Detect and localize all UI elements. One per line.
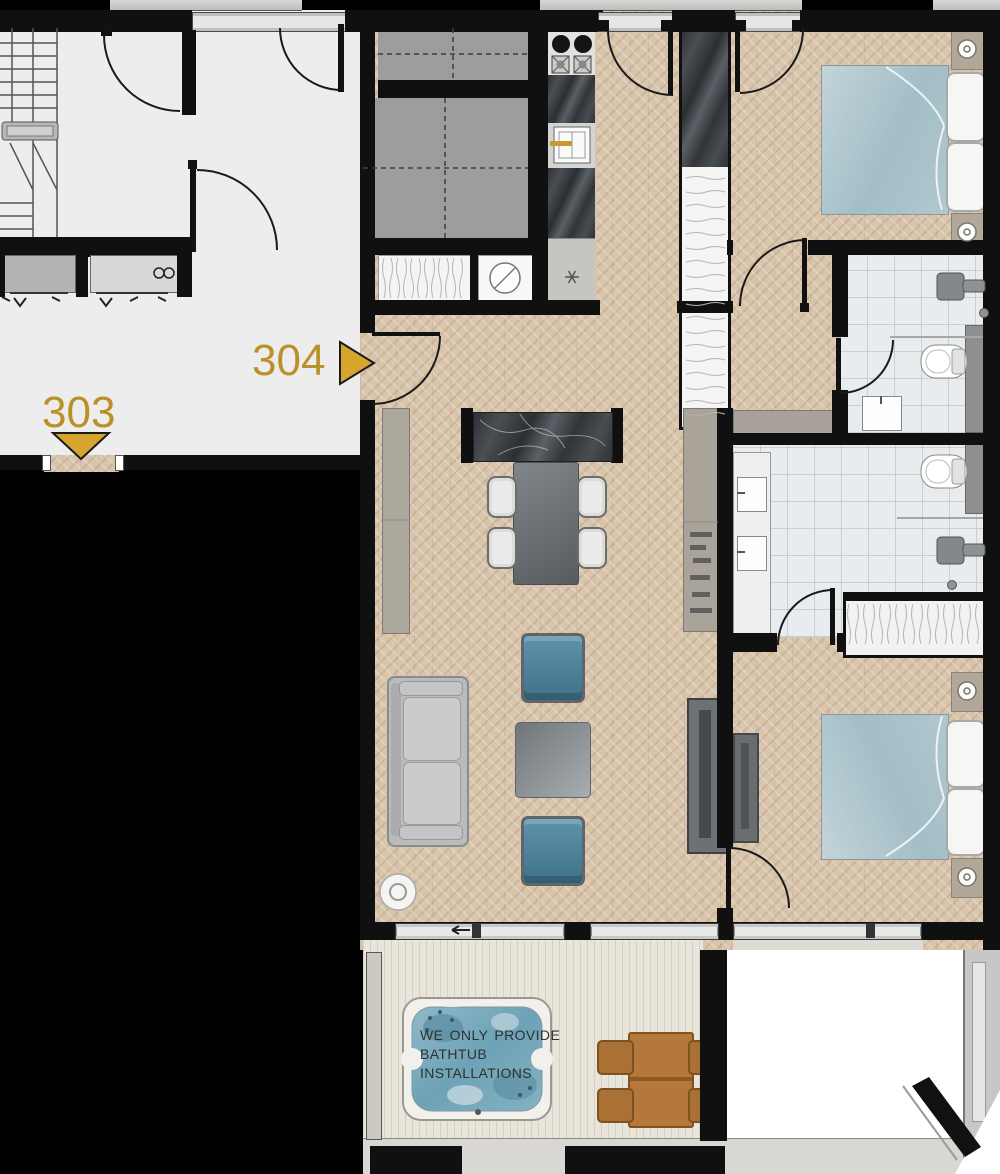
shower-icon <box>937 537 985 590</box>
door-leaves <box>101 24 841 908</box>
floor-plan: 304 303 WE ONLY PROVIDE BATHTUB INSTALLA… <box>0 0 1000 1174</box>
stove-burners-icon <box>552 35 592 73</box>
marble-veins <box>480 414 605 455</box>
bathtub-note-line: BATHTUB <box>420 1045 560 1064</box>
shaft-cross-lines <box>363 28 528 238</box>
unit-304-arrow-icon <box>340 342 374 384</box>
toilet-icon <box>921 345 967 378</box>
unit-303-label: 303 <box>42 388 115 438</box>
cooker-hood-icon <box>565 271 579 283</box>
washing-machine-drum-icon <box>490 263 520 293</box>
stair-landing-inner <box>7 126 53 136</box>
floor-lamp-icon <box>380 874 416 910</box>
bathtub-note-line: INSTALLATIONS <box>420 1064 560 1083</box>
door-swing-arcs <box>104 28 893 908</box>
door-direction-ticks <box>2 297 166 306</box>
bathtub-note: WE ONLY PROVIDE BATHTUB INSTALLATIONS <box>420 1026 560 1083</box>
shower-icon <box>937 273 989 318</box>
toilet-icon <box>921 455 967 488</box>
sink-taps <box>737 493 745 552</box>
unit-304-label: 304 <box>252 336 325 386</box>
closet-shelf-lines <box>686 177 725 416</box>
console-shelves <box>690 532 712 613</box>
plan-linework <box>0 0 1000 1174</box>
elevator-symbol-icon <box>154 268 174 278</box>
wardrobe-hanging-lines <box>383 258 979 644</box>
slide-direction-arrow-icon <box>452 926 470 934</box>
kitchen-sink-basin-icon <box>550 127 590 163</box>
bathtub-note-line: WE ONLY PROVIDE <box>420 1026 560 1045</box>
